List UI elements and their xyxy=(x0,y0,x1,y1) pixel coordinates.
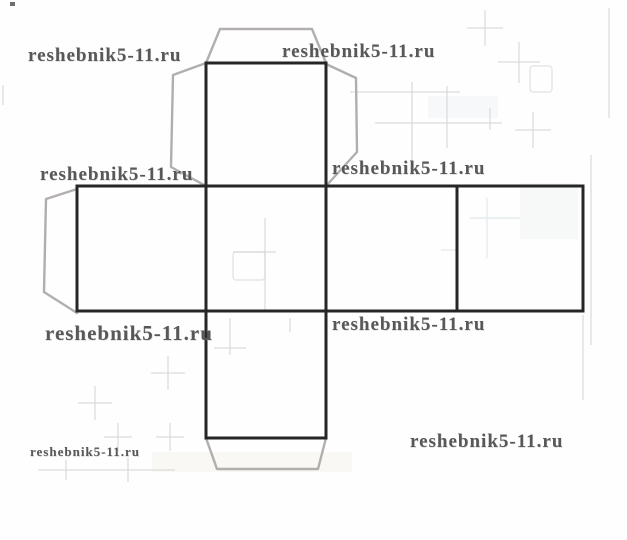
watermark-text: reshebnik5-11.ru xyxy=(45,321,213,346)
watermark-text: reshebnik5-11.ru xyxy=(282,41,435,63)
tint-patch xyxy=(520,183,578,239)
net-square xyxy=(206,63,326,186)
net-square xyxy=(206,311,326,438)
watermark-text: reshebnik5-11.ru xyxy=(30,444,140,460)
watermark-text: reshebnik5-11.ru xyxy=(332,314,485,336)
artifact-rect xyxy=(233,252,265,280)
watermark-text: reshebnik5-11.ru xyxy=(332,158,485,180)
watermark-text: reshebnik5-11.ru xyxy=(410,431,563,453)
watermark-text: reshebnik5-11.ru xyxy=(28,45,181,67)
artifact-rect xyxy=(530,66,552,92)
watermark-text: reshebnik5-11.ru xyxy=(40,164,193,186)
glue-flap xyxy=(44,189,77,313)
worksheet-page: reshebnik5-11.ru reshebnik5-11.ru resheb… xyxy=(0,0,627,540)
net-square xyxy=(326,186,457,311)
tint-patch xyxy=(428,96,498,118)
net-square xyxy=(77,186,206,311)
net-square xyxy=(206,186,326,311)
scan-mark xyxy=(10,2,15,6)
